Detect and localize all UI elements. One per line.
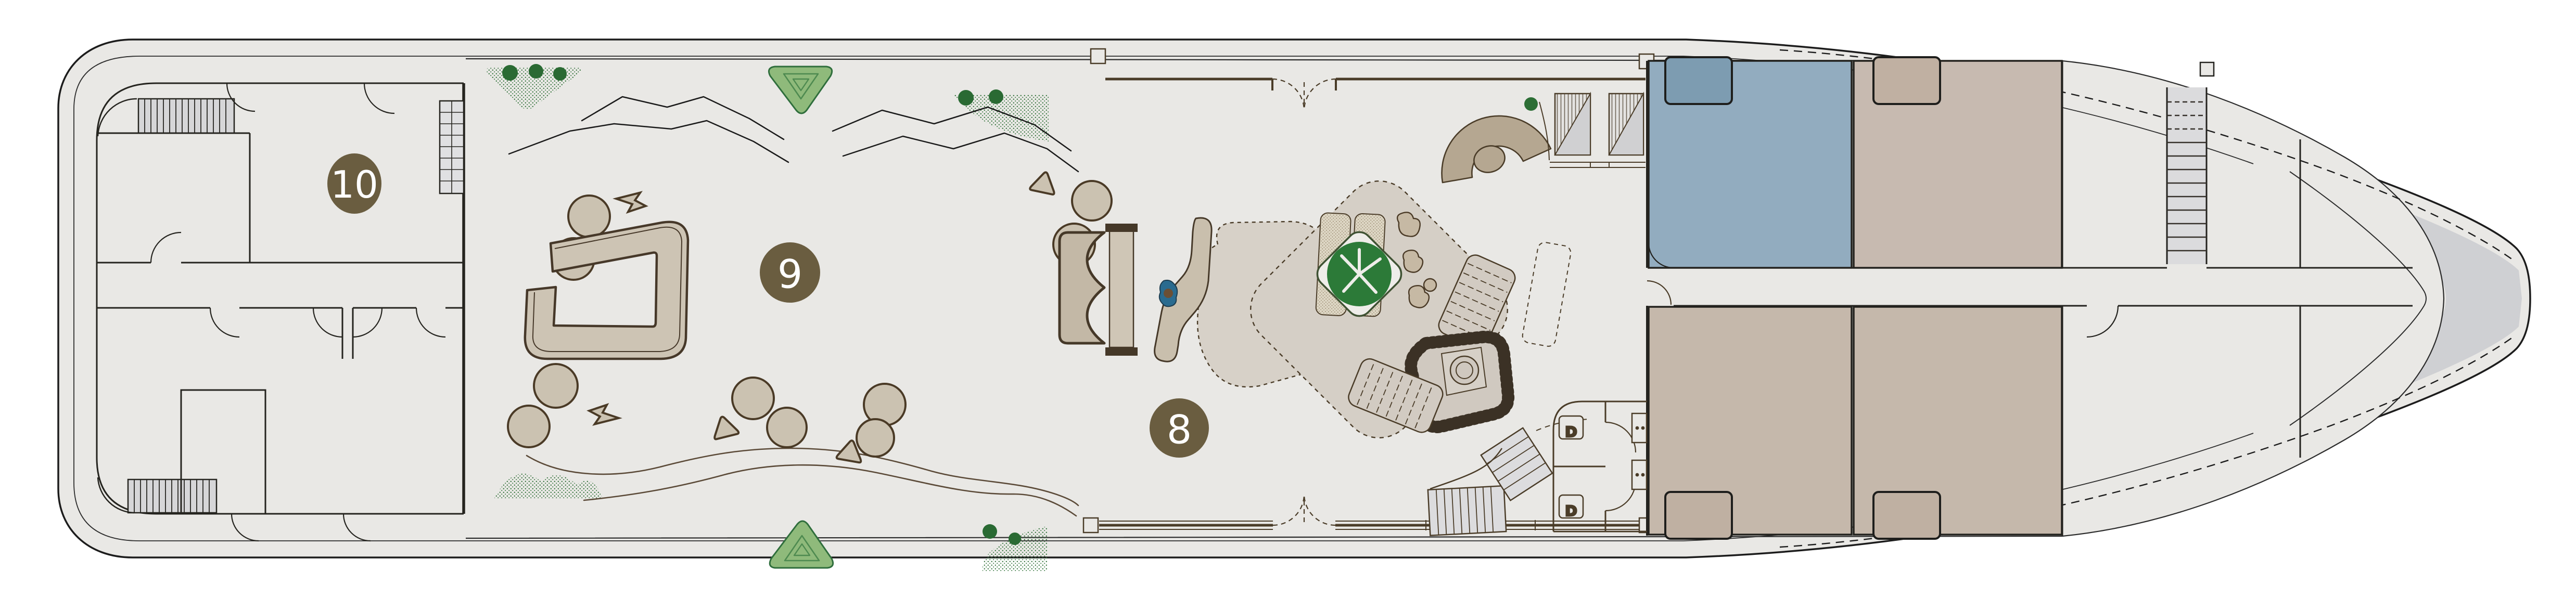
badge-label-8: 8 — [1167, 407, 1192, 453]
badge-area-9[interactable]: 9 — [760, 242, 820, 303]
bed-icon — [1665, 492, 1732, 539]
shrub-icon — [1009, 533, 1021, 545]
deck-plan-canvas: D D — [0, 0, 2576, 597]
toilet-icon: D — [1559, 416, 1583, 440]
bow-deck — [2062, 61, 2444, 536]
shrub-icon — [989, 89, 1003, 104]
shrub-icon — [502, 65, 518, 81]
shrub-icon — [553, 67, 567, 81]
stair-bow[interactable] — [2167, 87, 2207, 264]
grill-panel[interactable] — [1609, 94, 1643, 155]
bed-icon — [1873, 492, 1940, 539]
ladder-aft[interactable] — [440, 101, 464, 193]
badge-label-10: 10 — [330, 163, 378, 206]
shrub-icon — [958, 90, 974, 106]
vase-decor — [1159, 280, 1178, 306]
grill-panel[interactable] — [1555, 94, 1590, 155]
sink-icon — [1632, 460, 1647, 489]
badge-area-10[interactable]: 10 — [327, 153, 381, 214]
plant-icon — [1524, 97, 1538, 111]
bed-icon — [1873, 57, 1940, 104]
yacht-deck-plan: D D — [0, 0, 2576, 597]
badge-label-9: 9 — [777, 251, 802, 297]
toilet-label: D — [1565, 502, 1577, 520]
shrub-icon — [529, 64, 543, 79]
toilet-label: D — [1565, 423, 1577, 440]
bed-icon — [1665, 57, 1732, 104]
badge-area-8[interactable]: 8 — [1150, 398, 1209, 458]
dining-table[interactable] — [1105, 224, 1138, 356]
sink-icon — [1632, 413, 1647, 443]
wall-column — [2200, 62, 2214, 76]
shrub-icon — [983, 524, 997, 539]
toilet-icon: D — [1559, 495, 1583, 520]
